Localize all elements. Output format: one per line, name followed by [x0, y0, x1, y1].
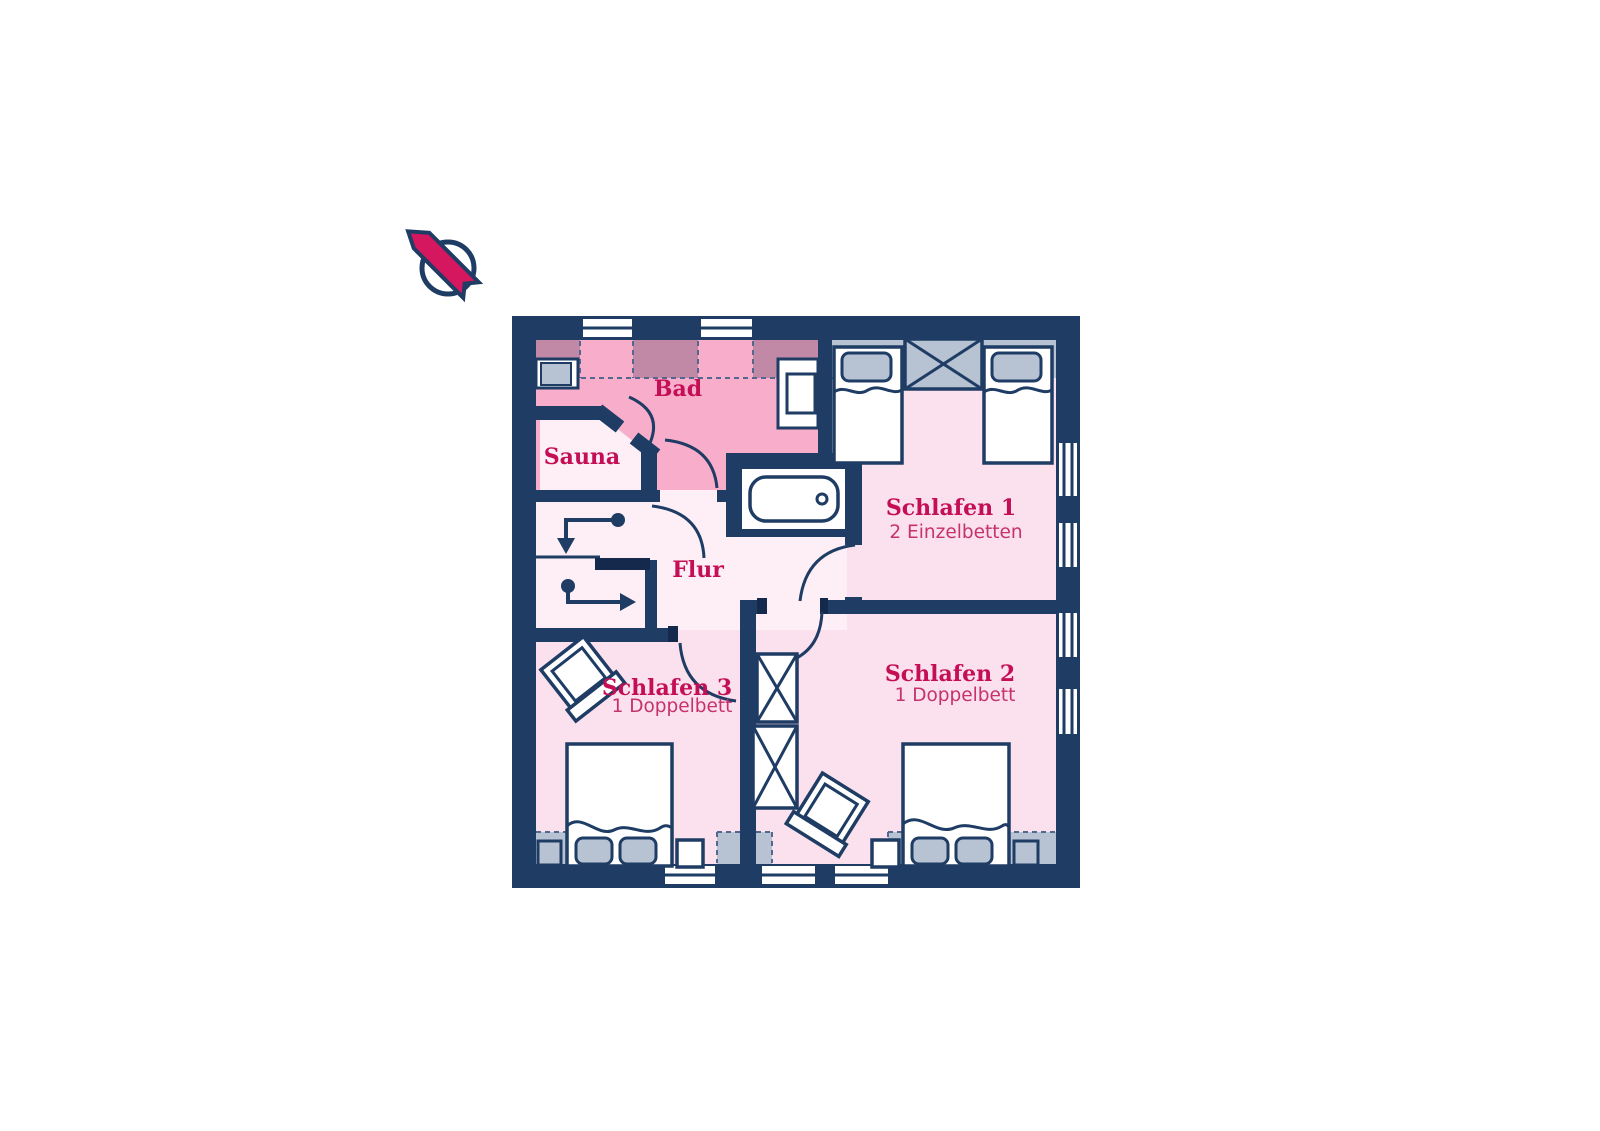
window-top-2 [700, 318, 753, 338]
room-label-sauna: Sauna [544, 444, 620, 470]
single-bed-icon [834, 347, 902, 463]
double-bed-icon [903, 744, 1009, 866]
wardrobe-icon [905, 339, 982, 389]
room-label-schlafen2: Schlafen 2 [885, 661, 1015, 687]
floor-plan-page: Bad Sauna Flur Schlafen 1 2 Einzelbetten… [0, 0, 1600, 1131]
single-bed-icon [984, 347, 1052, 463]
washbasin-icon [778, 359, 822, 428]
radiator-icon [1014, 841, 1038, 865]
room-sublabel-schlafen2: 1 Doppelbett [895, 685, 1016, 706]
room-label-bad: Bad [654, 376, 702, 402]
nightstand-icon [677, 840, 703, 867]
window-bottom-2 [762, 866, 815, 884]
radiator-icon [538, 841, 561, 865]
window-right-2 [1058, 522, 1078, 568]
outer-wall-right [1056, 316, 1080, 888]
window-top-1 [582, 318, 633, 338]
outer-wall-left [512, 316, 536, 888]
shelf-icon [536, 359, 578, 388]
window-right-4 [1058, 688, 1078, 735]
double-bed-icon [567, 744, 672, 866]
bathtub-icon [742, 469, 845, 529]
window-right-3 [1058, 612, 1078, 658]
stair-landing-divider [595, 558, 650, 570]
north-arrow-icon [402, 221, 478, 297]
room-label-schlafen1: Schlafen 1 [886, 495, 1016, 521]
floor-plan-svg: Bad Sauna Flur Schlafen 1 2 Einzelbetten… [0, 0, 1600, 1131]
wardrobe-icon [757, 654, 797, 722]
room-sublabel-schlafen3: 1 Doppelbett [612, 696, 733, 717]
room-label-flur: Flur [672, 557, 724, 583]
wardrobe-icon [753, 726, 797, 808]
room-sublabel-schlafen1: 2 Einzelbetten [889, 522, 1022, 543]
window-right-1 [1058, 442, 1078, 497]
nightstand-icon [872, 840, 899, 867]
